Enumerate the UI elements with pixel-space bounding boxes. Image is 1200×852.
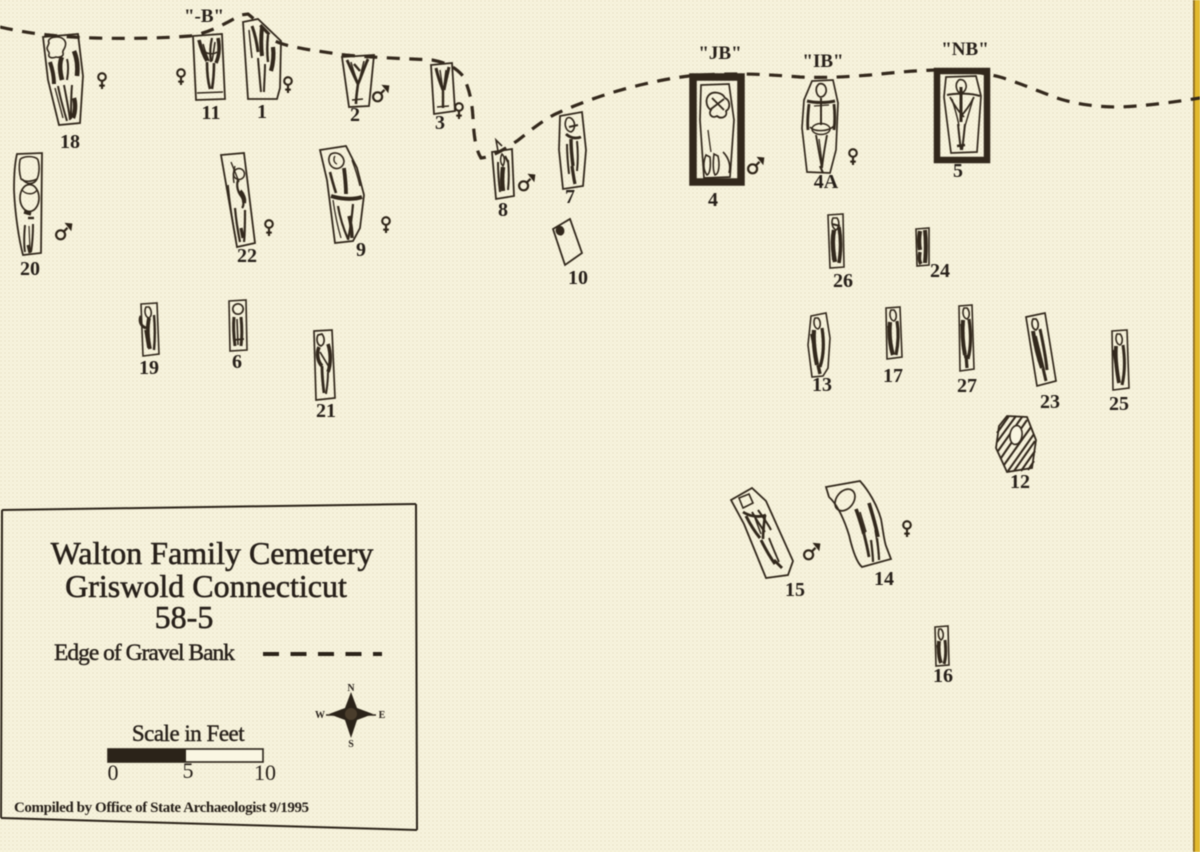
- svg-text:8: 8: [498, 199, 508, 221]
- svg-text:23: 23: [1040, 391, 1060, 413]
- svg-text:Edge of Gravel Bank: Edge of Gravel Bank: [54, 640, 235, 666]
- svg-text:16: 16: [933, 665, 953, 687]
- svg-text:27: 27: [957, 375, 977, 397]
- svg-text:6: 6: [232, 351, 242, 373]
- svg-text:4A: 4A: [814, 171, 839, 193]
- svg-text:21: 21: [316, 400, 336, 422]
- svg-text:24: 24: [930, 260, 950, 282]
- svg-text:17: 17: [883, 365, 903, 387]
- svg-text:14: 14: [874, 568, 894, 590]
- svg-text:Scale in Feet: Scale in Feet: [132, 721, 245, 746]
- svg-text:9: 9: [356, 239, 366, 261]
- svg-text:5: 5: [953, 160, 963, 182]
- svg-text:S: S: [348, 739, 354, 750]
- svg-text:E: E: [379, 710, 386, 721]
- svg-text:11: 11: [202, 102, 221, 124]
- svg-text:Walton Family Cemetery: Walton Family Cemetery: [51, 535, 374, 571]
- svg-text:25: 25: [1109, 393, 1129, 415]
- svg-text:1: 1: [257, 101, 267, 123]
- svg-text:Compiled by Office of State Ar: Compiled by Office of State Archaeologis…: [14, 800, 309, 816]
- svg-text:3: 3: [435, 112, 445, 134]
- svg-text:7: 7: [565, 186, 575, 208]
- svg-text:13: 13: [812, 374, 832, 396]
- svg-text:15: 15: [785, 579, 805, 601]
- svg-text:5: 5: [183, 758, 194, 783]
- svg-text:"JB": "JB": [698, 43, 741, 64]
- svg-text:4: 4: [708, 189, 718, 211]
- svg-text:N: N: [347, 683, 355, 694]
- svg-text:W: W: [315, 710, 325, 721]
- svg-text:10: 10: [568, 267, 588, 289]
- svg-text:20: 20: [20, 258, 40, 280]
- svg-text:"IB": "IB": [802, 51, 843, 72]
- svg-text:0: 0: [108, 760, 119, 785]
- svg-text:12: 12: [1010, 471, 1030, 493]
- svg-text:19: 19: [139, 357, 159, 379]
- svg-text:18: 18: [60, 131, 80, 153]
- svg-text:58-5: 58-5: [155, 599, 214, 635]
- svg-text:"NB": "NB": [941, 39, 989, 60]
- svg-text:26: 26: [833, 270, 853, 292]
- svg-text:2: 2: [350, 104, 360, 126]
- svg-text:22: 22: [237, 245, 257, 267]
- svg-text:10: 10: [254, 760, 276, 785]
- svg-text:"-B": "-B": [184, 6, 224, 27]
